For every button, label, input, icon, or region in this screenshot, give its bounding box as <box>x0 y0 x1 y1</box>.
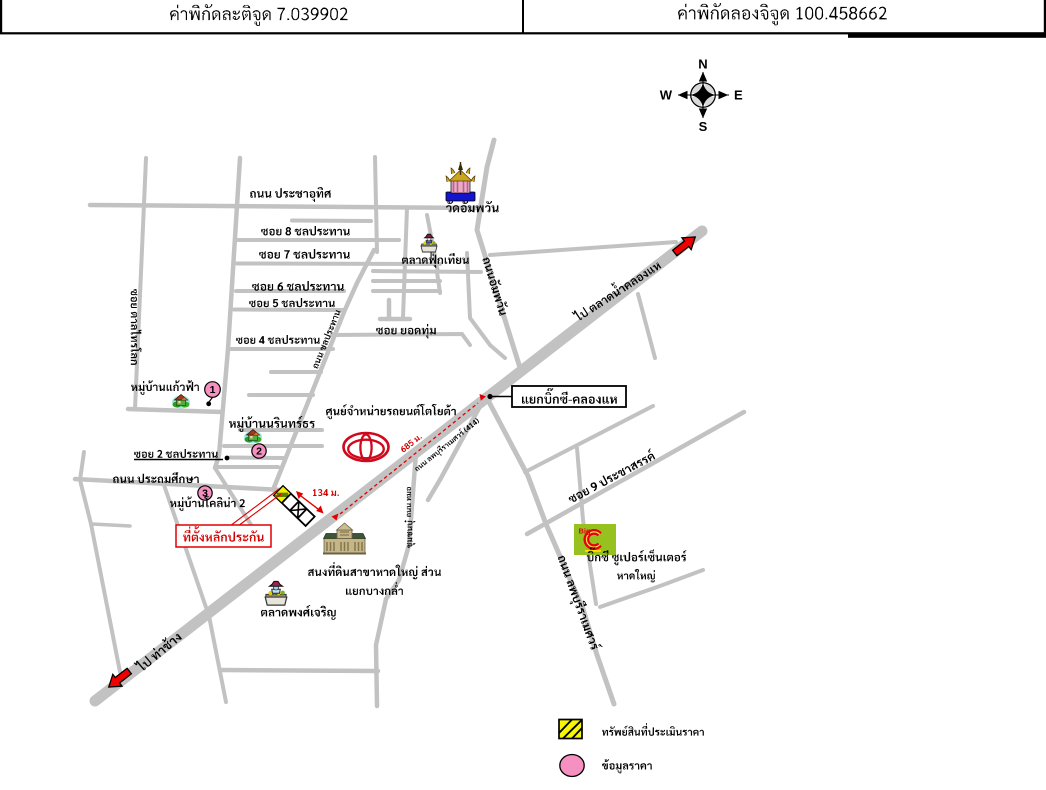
svg-text:N: N <box>698 57 707 72</box>
svg-text:Big: Big <box>579 527 592 536</box>
svg-text:E: E <box>734 88 743 103</box>
svg-text:W: W <box>660 88 673 103</box>
svg-text:2: 2 <box>256 446 262 458</box>
svg-text:S: S <box>699 119 708 134</box>
svg-text:1: 1 <box>210 384 216 396</box>
